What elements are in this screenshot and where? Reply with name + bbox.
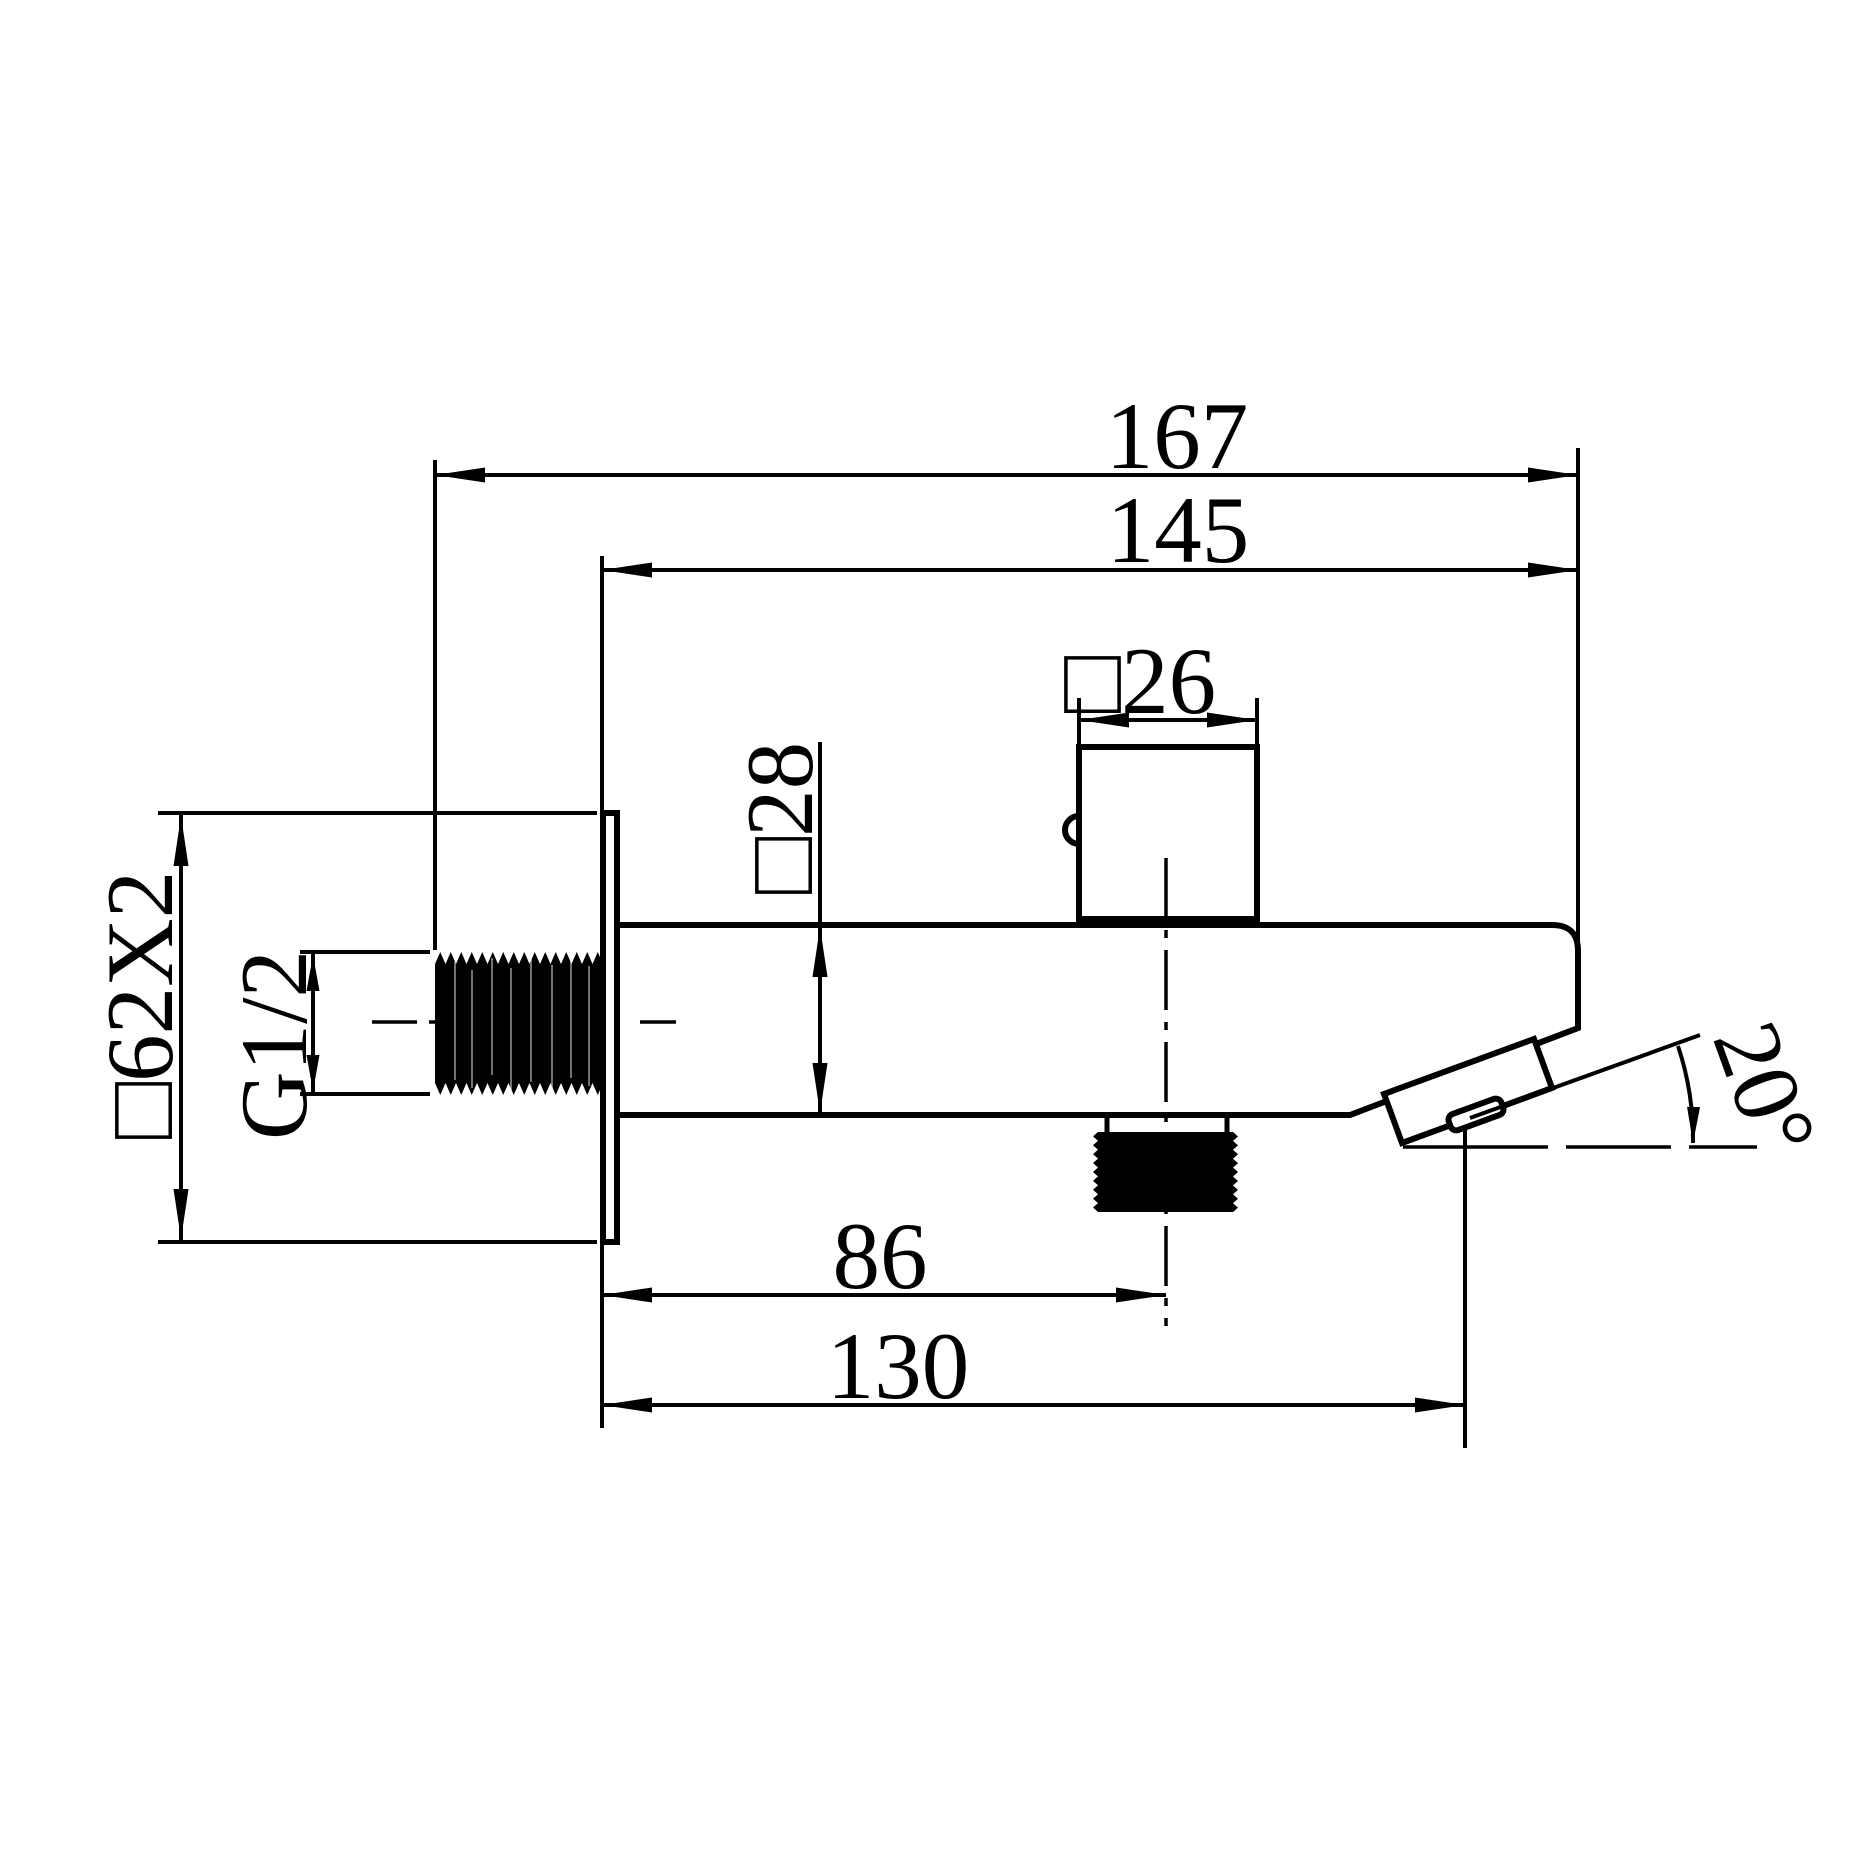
inlet-thread	[435, 952, 603, 1095]
flange-square-label: □62X2	[87, 871, 193, 1140]
body-square-label: □28	[727, 742, 833, 894]
outlet-center-label: 130	[827, 1313, 970, 1419]
wall-plate	[603, 813, 617, 1242]
inlet-thread-label: G1/2	[221, 950, 327, 1140]
drawing-sheet: 167 145 □26 □28 □62X2 G1/2 86 130 20°	[0, 0, 1875, 1875]
overall-length-label: 167	[1106, 383, 1249, 489]
diverter-center-label: 86	[833, 1203, 928, 1309]
technical-drawing: 167 145 □26 □28 □62X2 G1/2 86 130 20°	[0, 0, 1875, 1875]
angle-arc-arrow	[1678, 1046, 1693, 1143]
dimension-labels: 167 145 □26 □28 □62X2 G1/2 86 130 20°	[87, 383, 1838, 1419]
spout-assembly	[435, 747, 1578, 1242]
handle-knob	[1079, 747, 1257, 919]
handle-square-label: □26	[1064, 628, 1216, 734]
projection-label: 145	[1107, 477, 1250, 583]
